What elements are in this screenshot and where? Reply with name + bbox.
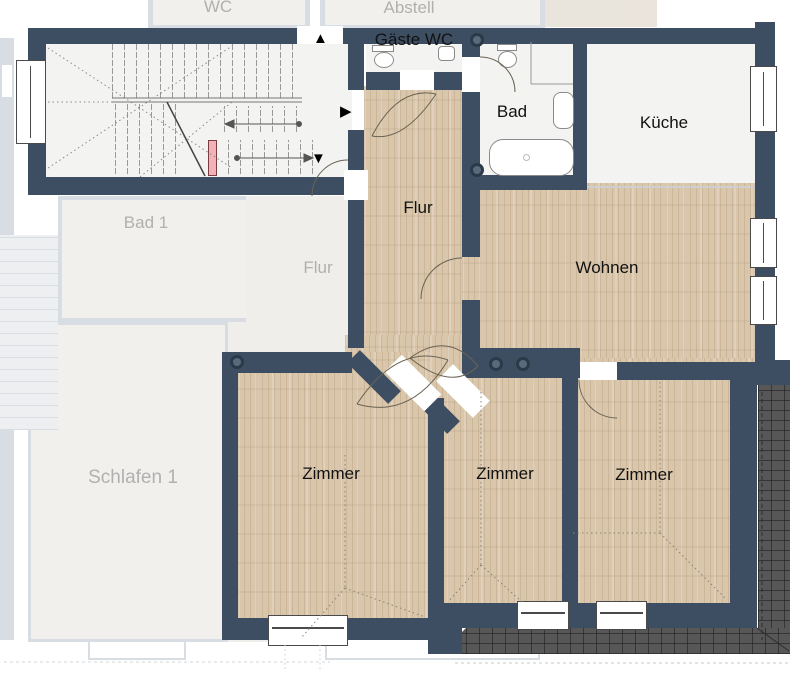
toilet-gaeste-wc xyxy=(374,52,394,68)
wall-segment xyxy=(28,28,46,62)
arrow-down-icon: ▼ xyxy=(311,151,326,166)
stair-marker xyxy=(208,140,217,176)
room-label-wohnen: Wohnen xyxy=(575,258,638,278)
wall-segment xyxy=(755,325,775,385)
wall-column xyxy=(470,163,484,177)
window-staircase xyxy=(16,60,46,144)
wall-column xyxy=(230,355,244,369)
faded-room-label-bad1: Bad 1 xyxy=(124,213,168,233)
window-zimmer-right xyxy=(596,601,647,630)
room-label-zimmer-right: Zimmer xyxy=(615,465,673,485)
faded-window xyxy=(1,64,13,98)
faded-stair-treads xyxy=(0,235,58,430)
window-zimmer-middle xyxy=(517,601,569,630)
window-glass-line xyxy=(30,66,31,138)
wall-column xyxy=(489,357,503,371)
terrace-right-strip xyxy=(758,385,790,651)
door-opening-entrance xyxy=(344,170,368,200)
window-glass-line xyxy=(763,281,764,320)
wall-segment xyxy=(462,175,587,190)
arrow-up-icon: ▲ xyxy=(313,31,328,46)
room-label-gaeste-wc: Gäste WC xyxy=(375,30,453,50)
wall-segment xyxy=(562,377,578,605)
faded-room-label-flur: Flur xyxy=(303,258,332,278)
floor-zimmer-middle xyxy=(430,378,578,606)
door-opening-zimmer-right xyxy=(580,362,617,380)
wall-segment xyxy=(28,177,348,195)
wall-column xyxy=(470,33,484,47)
floor-flur xyxy=(364,86,462,362)
faded-floor-strip xyxy=(545,0,657,27)
wall-segment xyxy=(347,618,430,640)
bathtub-drain xyxy=(523,154,530,161)
sink-bad xyxy=(553,92,574,129)
toilet-tank-bad xyxy=(497,44,517,51)
window-glass-line xyxy=(763,72,764,126)
wall-segment xyxy=(573,28,587,178)
faded-room-label-schlafen1: Schlafen 1 xyxy=(88,467,178,489)
terrace-bottom-strip xyxy=(440,628,790,654)
wall-segment xyxy=(755,22,775,68)
room-label-bad: Bad xyxy=(497,102,527,122)
wall-segment xyxy=(348,28,364,90)
floor-zimmer-left xyxy=(238,352,430,622)
wall-segment xyxy=(568,603,598,628)
room-label-zimmer-left: Zimmer xyxy=(302,464,360,484)
window-glass-line xyxy=(600,612,643,614)
wall-segment xyxy=(222,618,270,640)
toilet-bad xyxy=(498,51,517,68)
wall-segment xyxy=(428,628,462,654)
wall-segment xyxy=(617,362,757,380)
faded-room-label-abstell: Abstell xyxy=(383,0,434,18)
bathtub-bad xyxy=(489,139,574,176)
faded-room-label-wc: WC xyxy=(204,0,232,17)
wall-segment xyxy=(462,300,480,350)
wall-column xyxy=(516,357,530,371)
arrow-right-icon: ▶ xyxy=(340,104,352,119)
wall-segment xyxy=(755,132,775,220)
wall-segment xyxy=(428,603,520,628)
room-label-zimmer-middle: Zimmer xyxy=(476,464,534,484)
window-glass-line xyxy=(521,612,565,614)
wall-segment xyxy=(366,72,400,90)
faded-window xyxy=(88,640,186,660)
floor-plan-canvas: WC Abstell Bad 1 Flur Schlafen 1 xyxy=(0,0,800,675)
window-glass-line xyxy=(763,223,764,263)
stair-treads-lower-left xyxy=(115,104,177,176)
wall-segment xyxy=(28,28,297,44)
stair-treads-flight-a xyxy=(224,106,304,134)
wall-segment xyxy=(222,373,238,640)
room-label-kueche: Küche xyxy=(640,113,688,133)
wall-segment xyxy=(730,380,757,628)
stair-treads-flight-b xyxy=(228,140,314,176)
door-opening-gaeste-wc xyxy=(400,70,434,90)
window-zimmer-left xyxy=(268,615,348,646)
wall-segment xyxy=(434,72,462,90)
stair-treads-upper xyxy=(112,44,302,100)
room-label-flur: Flur xyxy=(403,198,432,218)
wall-segment xyxy=(348,198,364,348)
wall-segment xyxy=(428,398,444,620)
window-glass-line xyxy=(272,627,344,629)
